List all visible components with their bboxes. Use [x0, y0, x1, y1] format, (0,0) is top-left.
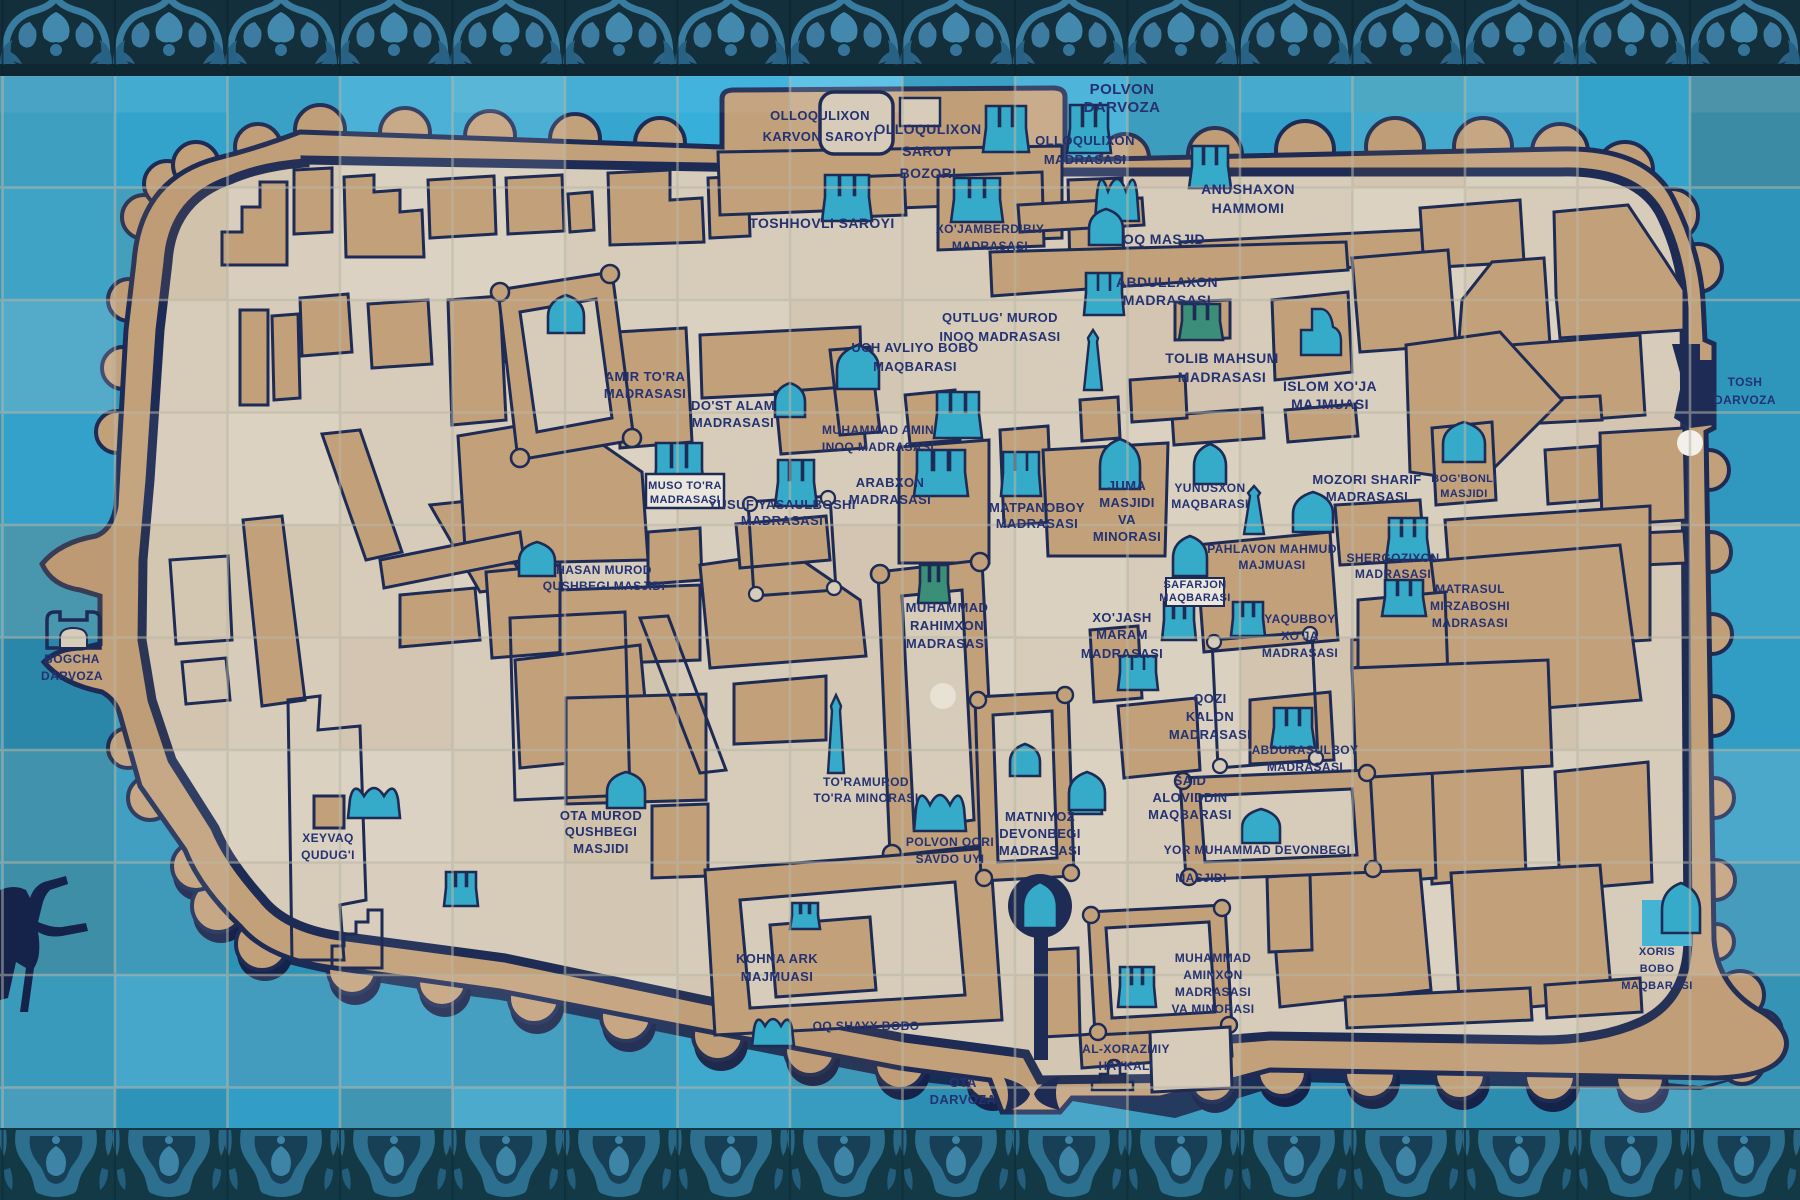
svg-text:XEYVAQ: XEYVAQ [302, 831, 354, 845]
svg-text:MADRASASI: MADRASASI [1044, 152, 1126, 167]
svg-text:MADRASASI: MADRASASI [1326, 489, 1408, 504]
svg-text:INOQ MADRASASI: INOQ MADRASASI [822, 440, 934, 454]
svg-text:KALON: KALON [1186, 709, 1234, 724]
svg-text:MADRASASI: MADRASASI [1178, 369, 1266, 385]
svg-text:MADRASASI: MADRASASI [999, 843, 1081, 858]
svg-text:MATRASUL: MATRASUL [1435, 582, 1505, 596]
svg-text:MADRASASI: MADRASASI [741, 513, 823, 528]
svg-text:ABDURASULBOY: ABDURASULBOY [1252, 743, 1359, 757]
svg-text:AMINXON: AMINXON [1183, 968, 1242, 982]
svg-text:ARABXON: ARABXON [856, 475, 925, 490]
svg-text:BOZORI: BOZORI [900, 165, 957, 181]
svg-text:XO'JA: XO'JA [1281, 629, 1319, 643]
svg-text:MAQBARASI: MAQBARASI [1171, 497, 1249, 511]
svg-text:MOZORI SHARIF: MOZORI SHARIF [1312, 472, 1421, 487]
svg-text:DO'ST ALAM: DO'ST ALAM [691, 398, 775, 413]
svg-text:QUSHBEGI: QUSHBEGI [565, 824, 638, 839]
svg-text:JUMA: JUMA [1108, 478, 1147, 493]
svg-text:QOZI: QOZI [1193, 691, 1226, 706]
svg-text:UCH AVLIYO BOBO: UCH AVLIYO BOBO [851, 340, 978, 355]
svg-text:VA: VA [1118, 512, 1136, 527]
svg-text:MADRASASI: MADRASASI [952, 239, 1028, 253]
svg-text:MADRASASI: MADRASASI [849, 492, 931, 507]
svg-text:MASJIDI: MASJIDI [1175, 871, 1226, 885]
svg-text:YAQUBBOY: YAQUBBOY [1264, 612, 1335, 626]
svg-text:YUNUSXON: YUNUSXON [1174, 481, 1245, 495]
svg-text:MAQBARASI: MAQBARASI [873, 359, 957, 374]
svg-text:TO'RA MINORASI: TO'RA MINORASI [813, 791, 918, 805]
svg-text:MADRASASI: MADRASASI [1267, 760, 1343, 774]
svg-text:OQ MASJID: OQ MASJID [1123, 231, 1205, 247]
svg-text:XO'JASH: XO'JASH [1092, 610, 1151, 625]
svg-text:MUHAMMAD: MUHAMMAD [1175, 951, 1252, 965]
svg-text:DEVONBEGI: DEVONBEGI [999, 826, 1081, 841]
svg-text:OLLOQULIXON: OLLOQULIXON [874, 121, 981, 137]
svg-text:RAHIMXON: RAHIMXON [910, 618, 984, 633]
svg-text:BOBO: BOBO [1640, 963, 1675, 975]
svg-text:YUSUF YASAULBOSHI: YUSUF YASAULBOSHI [708, 497, 856, 512]
svg-text:MASJIDI: MASJIDI [1440, 488, 1487, 500]
svg-text:MADRASASI: MADRASASI [604, 386, 686, 401]
svg-text:YOR MUHAMMAD DEVONBEGI: YOR MUHAMMAD DEVONBEGI [1164, 843, 1351, 857]
svg-text:XO'JAMBERDIBIY: XO'JAMBERDIBIY [936, 222, 1044, 236]
svg-text:TOSH: TOSH [1728, 375, 1763, 389]
svg-text:MADRASASI: MADRASASI [1432, 616, 1508, 630]
svg-text:OQ SHAYX BOBO: OQ SHAYX BOBO [813, 1019, 920, 1033]
svg-text:DARVOZA: DARVOZA [1714, 393, 1776, 407]
svg-text:MAQBARASI: MAQBARASI [1148, 807, 1232, 822]
svg-text:MUHAMMAD: MUHAMMAD [906, 600, 989, 615]
svg-text:DARVOZA: DARVOZA [41, 669, 103, 683]
svg-text:QUTLUG' MUROD: QUTLUG' MUROD [942, 310, 1058, 325]
svg-text:BOG'BONLI: BOG'BONLI [1431, 473, 1497, 485]
svg-text:XORIS: XORIS [1639, 946, 1675, 958]
svg-text:TO'RAMUROD: TO'RAMUROD [823, 775, 909, 789]
svg-text:HAMMOMI: HAMMOMI [1212, 200, 1285, 216]
svg-text:MATPANOBOY: MATPANOBOY [989, 500, 1085, 515]
svg-text:ANUSHAXON: ANUSHAXON [1201, 181, 1295, 197]
svg-text:SAID: SAID [1174, 773, 1207, 788]
svg-text:SAVDO UYI: SAVDO UYI [916, 852, 985, 866]
svg-text:OTA: OTA [949, 1075, 977, 1090]
svg-text:PAHLAVON MAHMUD: PAHLAVON MAHMUD [1207, 542, 1337, 556]
svg-text:OLLOQULIXON: OLLOQULIXON [770, 108, 870, 123]
svg-text:SAROY: SAROY [902, 143, 954, 159]
svg-text:POLVON: POLVON [1090, 81, 1155, 98]
svg-text:MARAM: MARAM [1096, 627, 1148, 642]
svg-text:MAQBARASI: MAQBARASI [1159, 592, 1230, 604]
svg-text:MADRASASI: MADRASASI [906, 636, 988, 651]
svg-text:SHERGOZIXON: SHERGOZIXON [1346, 551, 1439, 565]
svg-text:MATNIYOZ: MATNIYOZ [1005, 809, 1075, 824]
svg-text:KARVON SAROYI: KARVON SAROYI [763, 129, 878, 144]
svg-text:QUSHBEGI MASJIDI: QUSHBEGI MASJIDI [543, 579, 665, 593]
svg-text:MADRASASI: MADRASASI [692, 415, 774, 430]
svg-text:DARVOZA: DARVOZA [930, 1092, 997, 1107]
svg-text:DARVOZA: DARVOZA [1084, 99, 1161, 116]
svg-text:AL-XORAZMIY: AL-XORAZMIY [1082, 1042, 1170, 1056]
svg-text:OTA MUROD: OTA MUROD [560, 808, 642, 823]
svg-text:HASAN MUROD: HASAN MUROD [556, 563, 652, 577]
svg-text:MIRZABOSHI: MIRZABOSHI [1430, 599, 1510, 613]
svg-text:MADRASASI: MADRASASI [1262, 646, 1338, 660]
svg-text:MAQBARASI: MAQBARASI [1621, 980, 1692, 992]
svg-text:MAJMUASI: MAJMUASI [1291, 396, 1369, 412]
svg-text:HAYKALI: HAYKALI [1098, 1059, 1153, 1073]
svg-text:TOSHHOVLI SAROYI: TOSHHOVLI SAROYI [749, 215, 894, 231]
svg-text:MADRASASI: MADRASASI [1081, 646, 1163, 661]
svg-text:MADRASASI: MADRASASI [1355, 567, 1431, 581]
svg-text:MADRASASI: MADRASASI [1123, 292, 1211, 308]
svg-text:VA MINORASI: VA MINORASI [1171, 1002, 1254, 1016]
svg-text:TOLIB MAHSUM: TOLIB MAHSUM [1165, 350, 1278, 366]
svg-text:MADRASASI: MADRASASI [1175, 985, 1251, 999]
svg-text:MASJIDI: MASJIDI [1099, 495, 1155, 510]
svg-text:MUHAMMAD AMIN: MUHAMMAD AMIN [822, 423, 934, 437]
svg-text:MADRASASI: MADRASASI [1169, 727, 1251, 742]
svg-text:ISLOM XO'JA: ISLOM XO'JA [1283, 378, 1377, 394]
svg-text:AMIR TO'RA: AMIR TO'RA [605, 369, 686, 384]
svg-text:MADRASASI: MADRASASI [996, 516, 1078, 531]
svg-text:MAJMUASI: MAJMUASI [1238, 558, 1305, 572]
svg-text:MAJMUASI: MAJMUASI [741, 969, 814, 984]
svg-text:BOGCHA: BOGCHA [44, 652, 100, 666]
svg-text:POLVON QORI: POLVON QORI [906, 835, 994, 849]
svg-text:ALOVIDDIN: ALOVIDDIN [1152, 790, 1227, 805]
svg-text:MUSO TO'RA: MUSO TO'RA [648, 480, 722, 492]
svg-text:MINORASI: MINORASI [1093, 529, 1161, 544]
svg-text:ABDULLAXON: ABDULLAXON [1116, 274, 1218, 290]
svg-text:QUDUG'I: QUDUG'I [301, 848, 355, 862]
svg-text:SAFARJON: SAFARJON [1163, 579, 1226, 591]
svg-text:MASJIDI: MASJIDI [573, 841, 629, 856]
svg-text:OLLOQULIXON: OLLOQULIXON [1035, 133, 1135, 148]
svg-text:KOHNA ARK: KOHNA ARK [736, 951, 818, 966]
